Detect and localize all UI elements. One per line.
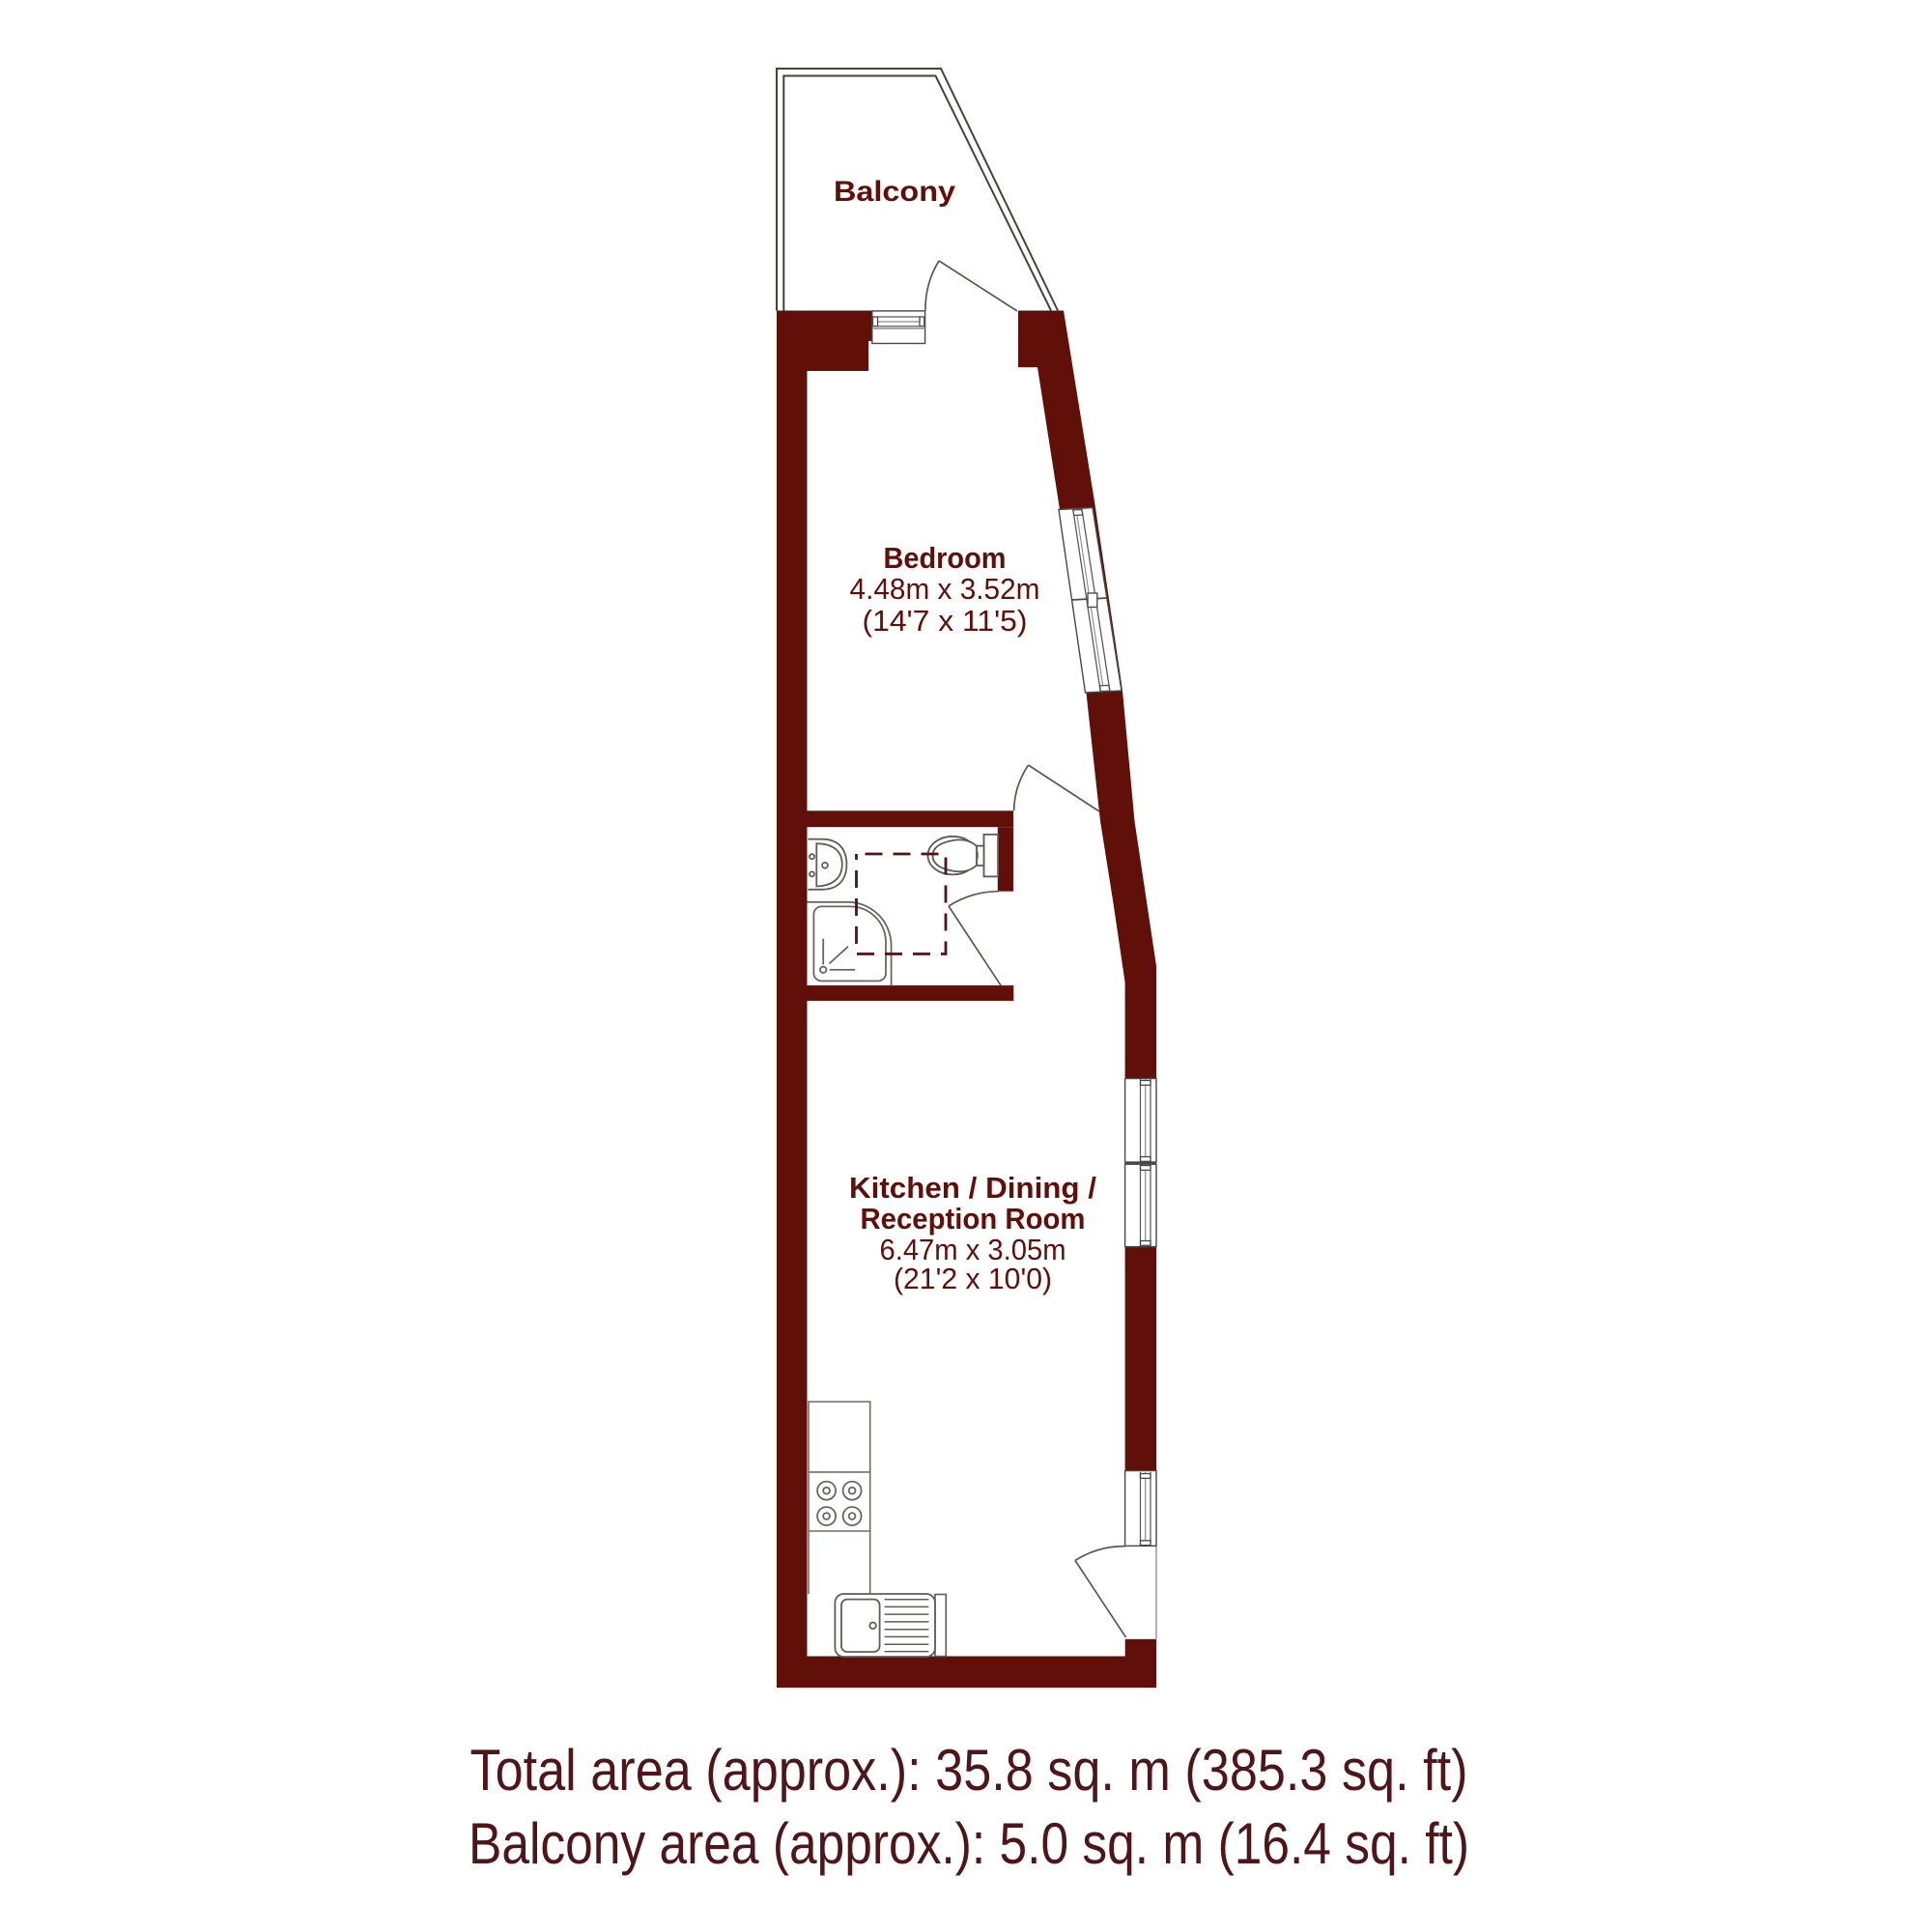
svg-text:Bedroom: Bedroom <box>884 541 1007 575</box>
svg-text:Balcony area (approx.): 5.0 sq: Balcony area (approx.): 5.0 sq. m (16.4 … <box>469 1811 1469 1876</box>
svg-text:(14'7 x 11'5): (14'7 x 11'5) <box>863 604 1028 638</box>
svg-text:Balcony: Balcony <box>834 176 956 208</box>
svg-text:(21'2 x 10'0): (21'2 x 10'0) <box>894 1262 1052 1295</box>
svg-text:Kitchen / Dining /: Kitchen / Dining / <box>849 1171 1096 1205</box>
svg-text:Reception Room: Reception Room <box>861 1202 1086 1236</box>
svg-text:4.48m x 3.52m: 4.48m x 3.52m <box>850 572 1040 606</box>
svg-text:Total area (approx.): 35.8 sq.: Total area (approx.): 35.8 sq. m (385.3 … <box>470 1738 1468 1803</box>
